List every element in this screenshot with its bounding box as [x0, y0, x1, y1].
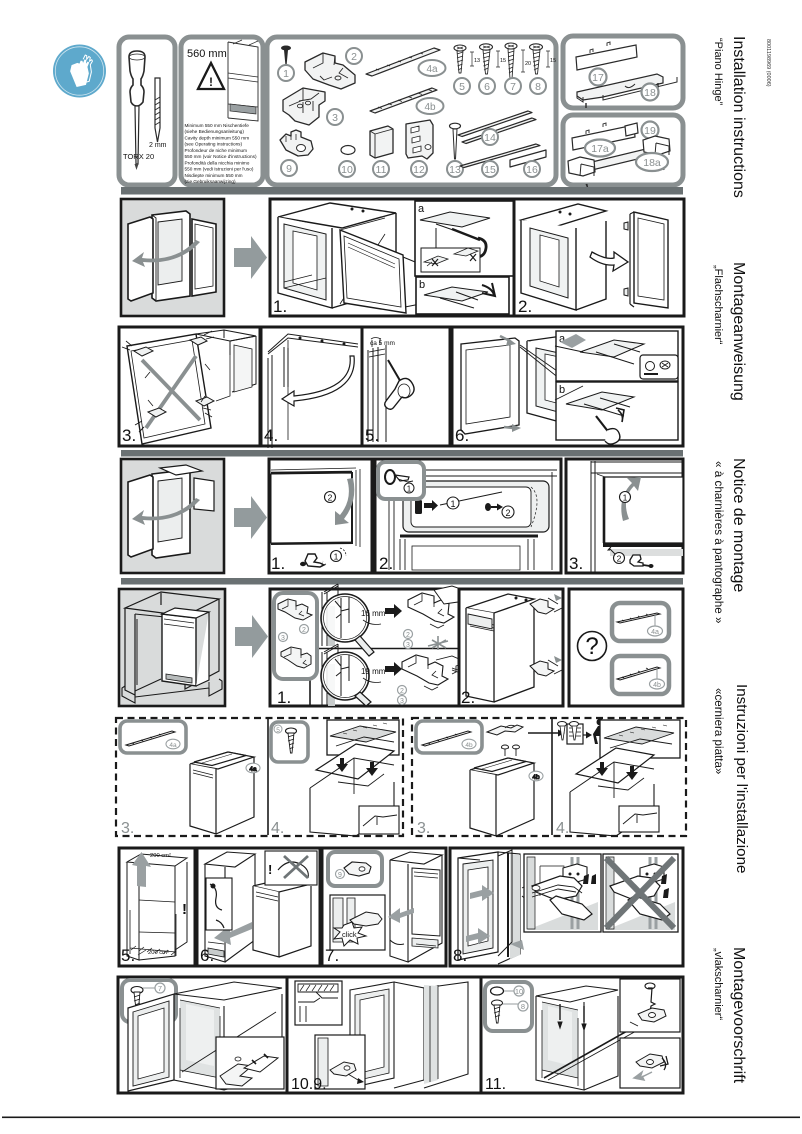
- svg-text:15: 15: [500, 58, 506, 64]
- svg-text:2.: 2.: [461, 688, 475, 707]
- svg-text:20: 20: [525, 61, 531, 67]
- svg-text:6.: 6.: [200, 946, 214, 965]
- svg-text:19 mm: 19 mm: [361, 667, 386, 676]
- svg-text:15: 15: [484, 164, 496, 176]
- svg-text:Instruzioni per l'installazion: Instruzioni per l'installazione: [733, 684, 750, 873]
- svg-text:2: 2: [302, 627, 306, 634]
- svg-text:!: !: [209, 75, 213, 89]
- svg-text:(see Operating instructions): (see Operating instructions): [185, 142, 243, 147]
- svg-text:1: 1: [283, 68, 289, 80]
- svg-text:3.: 3.: [417, 820, 430, 837]
- svg-text:10: 10: [341, 164, 353, 176]
- svg-text:4b: 4b: [532, 774, 540, 781]
- svg-text:b: b: [419, 279, 425, 291]
- svg-text:18: 18: [644, 87, 656, 99]
- svg-text:560 mm: 560 mm: [187, 48, 227, 60]
- svg-text:4a: 4a: [651, 629, 659, 636]
- svg-text:3: 3: [332, 112, 338, 124]
- svg-text:4a: 4a: [169, 742, 177, 749]
- svg-text:!: !: [182, 901, 187, 918]
- svg-text:7: 7: [158, 984, 162, 993]
- svg-text:3.: 3.: [122, 426, 136, 445]
- svg-text:Installation instructions: Installation instructions: [730, 36, 747, 198]
- svg-text:4a: 4a: [249, 766, 257, 773]
- svg-text:6: 6: [484, 81, 490, 93]
- svg-text:2: 2: [400, 688, 404, 695]
- svg-text:4.: 4.: [556, 820, 569, 837]
- svg-text:(zie Gebruiksaanwijzing): (zie Gebruiksaanwijzing): [185, 179, 237, 184]
- svg-text:1: 1: [450, 499, 455, 509]
- svg-text:9: 9: [338, 872, 342, 879]
- svg-text:18a: 18a: [643, 157, 661, 169]
- svg-text:1: 1: [407, 484, 412, 493]
- svg-text:12: 12: [413, 164, 425, 176]
- svg-text:7.: 7.: [325, 946, 339, 965]
- svg-text:TORX 20: TORX 20: [123, 152, 154, 161]
- svg-text:16 mm: 16 mm: [361, 609, 386, 618]
- svg-text:200 cm²: 200 cm²: [150, 853, 171, 859]
- svg-text:11.: 11.: [485, 1076, 506, 1093]
- svg-text:4.: 4.: [271, 820, 284, 837]
- svg-text:Profondità della nicchia minim: Profondità della nicchia minimo: [185, 161, 250, 166]
- svg-text:3: 3: [400, 698, 404, 705]
- svg-text:3: 3: [406, 642, 410, 649]
- svg-text:click: click: [342, 930, 357, 939]
- svg-text:«cerniera piatta»: «cerniera piatta»: [712, 688, 725, 774]
- svg-text:11: 11: [376, 164, 387, 176]
- svg-text:15: 15: [550, 58, 556, 64]
- svg-text:“Piano Hinge”: “Piano Hinge”: [712, 38, 724, 106]
- svg-text:b: b: [559, 384, 565, 396]
- svg-text:4b: 4b: [465, 742, 473, 749]
- svg-text:4b: 4b: [653, 682, 661, 689]
- svg-text:Minimum 550 mm Nischentiefe: Minimum 550 mm Nischentiefe: [185, 123, 250, 128]
- svg-text:(siehe Bedienungsanleitung): (siehe Bedienungsanleitung): [185, 129, 245, 134]
- svg-text:10.9.: 10.9.: [291, 1076, 327, 1093]
- svg-text:2: 2: [617, 554, 622, 564]
- svg-text:8001198969 (0006): 8001198969 (0006): [765, 39, 771, 87]
- svg-text:5.: 5.: [121, 946, 135, 965]
- svg-text:8: 8: [535, 81, 541, 93]
- svg-text:1: 1: [623, 493, 628, 503]
- svg-text:7: 7: [510, 81, 516, 93]
- svg-text:Montageanweisung: Montageanweisung: [730, 262, 747, 401]
- svg-text:Cavity depth minimum 550 mm: Cavity depth minimum 550 mm: [185, 136, 250, 141]
- svg-text:5: 5: [276, 727, 280, 734]
- svg-text:9: 9: [286, 163, 292, 175]
- svg-text:13: 13: [449, 164, 461, 176]
- svg-text:Nisdiepte minimum 550 mm: Nisdiepte minimum 550 mm: [185, 173, 243, 178]
- svg-text:?: ?: [585, 633, 598, 660]
- svg-text:14: 14: [484, 132, 496, 144]
- svg-text:2 mm: 2 mm: [149, 142, 167, 149]
- svg-text:a: a: [418, 203, 425, 215]
- svg-text:17: 17: [592, 72, 604, 84]
- svg-text:4.: 4.: [264, 426, 278, 445]
- svg-text:1.: 1.: [273, 297, 287, 316]
- svg-text:6.: 6.: [455, 426, 469, 445]
- svg-text:5: 5: [459, 81, 465, 93]
- svg-text:„vlakscharnier“: „vlakscharnier“: [712, 948, 724, 1020]
- svg-text:1.: 1.: [271, 554, 285, 573]
- svg-text:1: 1: [334, 552, 339, 562]
- svg-text:17a: 17a: [591, 143, 609, 155]
- svg-text:13: 13: [474, 58, 480, 64]
- svg-text:3.: 3.: [121, 820, 134, 837]
- svg-text:Notice de montage: Notice de montage: [730, 458, 747, 592]
- svg-text:8.: 8.: [453, 946, 467, 965]
- svg-text:550 mm (voir Notice d'instruct: 550 mm (voir Notice d'instructions): [185, 154, 257, 159]
- svg-text:4a: 4a: [426, 64, 438, 75]
- svg-text:2: 2: [328, 493, 333, 503]
- svg-text:16: 16: [526, 164, 538, 176]
- svg-text:200 cm²: 200 cm²: [148, 950, 169, 956]
- svg-text:2.: 2.: [379, 554, 393, 573]
- svg-text:3: 3: [281, 635, 285, 642]
- svg-text:10: 10: [515, 987, 523, 996]
- svg-text:Montagevoorschrift: Montagevoorschrift: [730, 947, 747, 1084]
- svg-text:ca 5 mm: ca 5 mm: [370, 340, 395, 347]
- svg-text:!: !: [268, 862, 272, 877]
- svg-text:Profondeur de niche minimum: Profondeur de niche minimum: [185, 148, 248, 153]
- svg-text:2: 2: [351, 51, 357, 63]
- svg-text:„Flachscharnier“: „Flachscharnier“: [712, 265, 724, 345]
- svg-text:3.: 3.: [569, 554, 583, 573]
- svg-text:« à charnières à pantographe »: « à charnières à pantographe »: [712, 461, 725, 624]
- svg-text:1.: 1.: [277, 688, 291, 707]
- svg-text:4b: 4b: [424, 102, 436, 113]
- svg-text:2: 2: [505, 508, 510, 518]
- svg-text:5.: 5.: [365, 426, 379, 445]
- svg-text:19: 19: [644, 125, 656, 137]
- svg-text:2.: 2.: [518, 297, 532, 316]
- svg-text:2: 2: [406, 632, 410, 639]
- svg-text:550 mm (vedi Istruzioni per l': 550 mm (vedi Istruzioni per l'uso): [185, 167, 254, 172]
- svg-text:8: 8: [521, 1002, 525, 1011]
